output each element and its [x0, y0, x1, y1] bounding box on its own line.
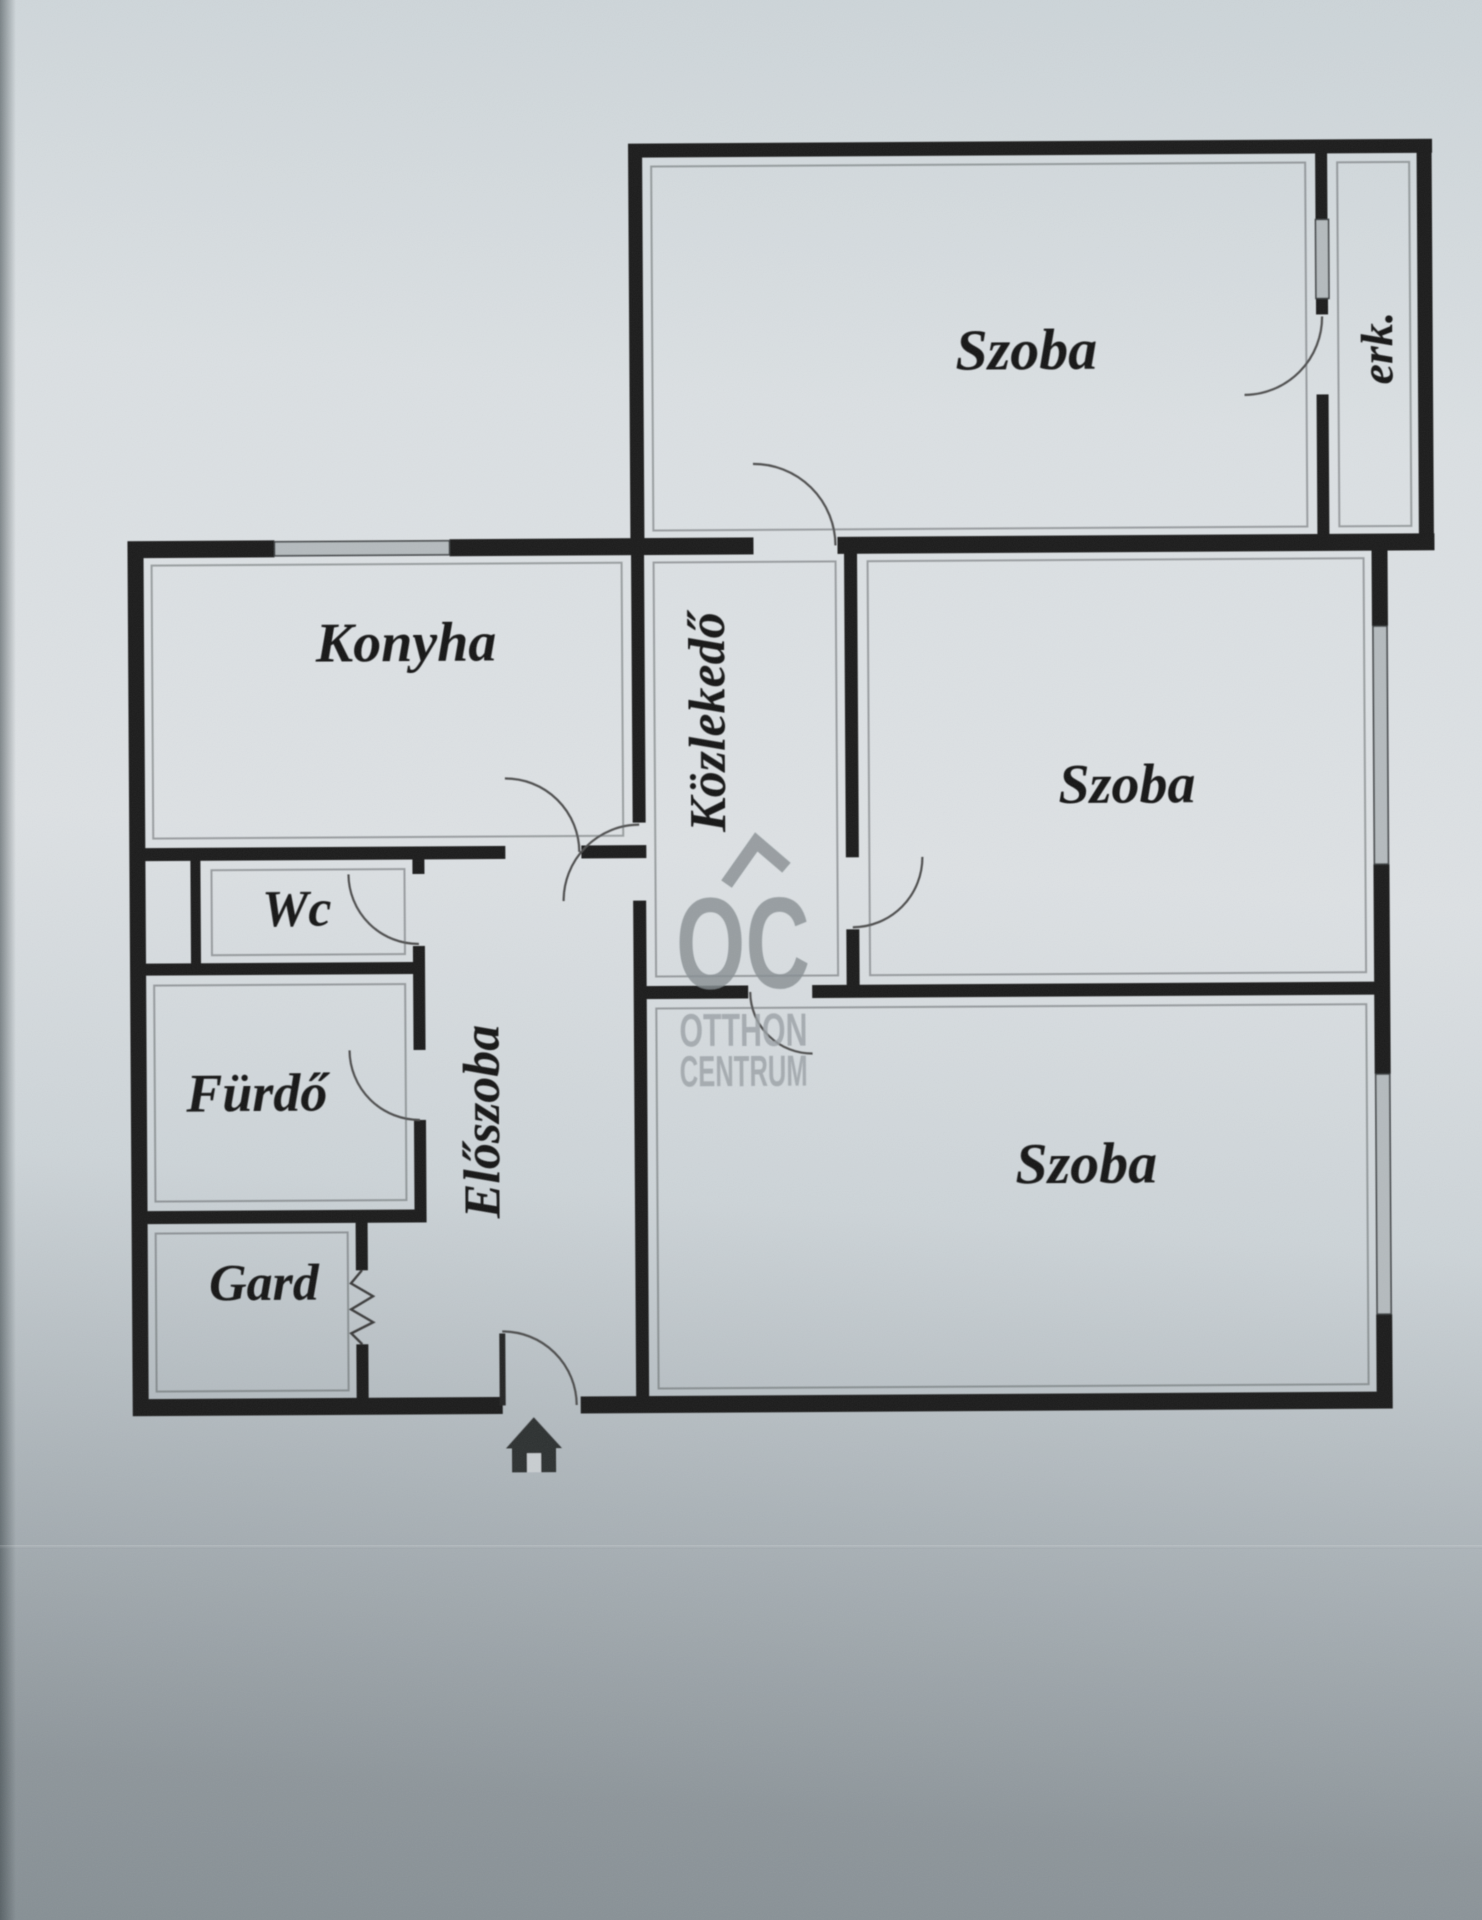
door-arc-room-top	[753, 463, 835, 545]
windows	[273, 219, 1392, 1321]
watermark-logo: OC	[675, 870, 810, 1017]
wall-segment	[850, 545, 852, 857]
wall-segment	[420, 1120, 421, 1222]
wall-segment	[134, 1216, 427, 1218]
wall-segment	[640, 901, 643, 1413]
room-label-szoba-bottom: Szoba	[1015, 1130, 1157, 1196]
entrance-icon-door	[527, 1453, 541, 1472]
wall-segment	[635, 144, 638, 555]
walls	[125, 139, 1440, 1416]
room-label-kozlekedo: Közlekedő	[679, 609, 737, 833]
wall-segment	[419, 946, 420, 1050]
folding-door-gard	[351, 1270, 373, 1344]
wall-segment	[637, 547, 639, 823]
wall-segment	[812, 988, 1388, 992]
room-label-furdo: Fürdő	[185, 1063, 330, 1124]
room-label-erkely: erk.	[1351, 312, 1402, 385]
door-arc-entrance	[502, 1331, 576, 1405]
wall-segment	[449, 546, 753, 548]
inner-face-lines	[149, 162, 1416, 1392]
wall-segment	[133, 1405, 503, 1407]
room-label-szoba-middle: Szoba	[1058, 753, 1195, 816]
wall-segment	[1384, 1314, 1385, 1408]
floor-plan-drawing: OC OTTHON CENTRUM Szoba Szoba Szoba Kony…	[0, 0, 1482, 1920]
entrance-icon	[506, 1417, 562, 1472]
wall-segment	[135, 542, 140, 1416]
wall-segment	[131, 852, 505, 854]
wall-segment	[837, 542, 1434, 546]
watermark: OC OTTHON CENTRUM	[675, 842, 811, 1097]
room-label-eloszoba: Előszoba	[453, 1025, 511, 1220]
wall-segment	[1424, 139, 1427, 550]
door-arc-wc	[348, 874, 418, 944]
door-arc-balcony	[1244, 316, 1322, 394]
window-room-bottom	[1376, 1074, 1391, 1314]
wall-segment	[581, 1400, 1393, 1405]
window-room-middle	[1373, 626, 1388, 864]
watermark-line2: CENTRUM	[680, 1047, 808, 1097]
wall-segment	[1381, 864, 1382, 1074]
wall-segment	[127, 549, 274, 550]
window-balcony	[1315, 219, 1328, 298]
floor-plan-photo: OC OTTHON CENTRUM Szoba Szoba Szoba Kony…	[0, 0, 1482, 1920]
wall-segment	[132, 968, 425, 970]
room-labels: Szoba Szoba Szoba Konyha Wc Fürdő Gard K…	[181, 312, 1409, 1313]
wall-segment	[1379, 534, 1380, 626]
room-label-szoba-top: Szoba	[955, 317, 1097, 383]
room-label-wc: Wc	[262, 881, 332, 938]
door-arc-bath	[350, 1050, 420, 1120]
room-label-gard: Gard	[209, 1255, 320, 1313]
entrance-icon-roof	[506, 1417, 562, 1448]
wall-segment	[195, 854, 196, 969]
wall-segment	[1323, 394, 1324, 550]
room-label-konyha: Konyha	[315, 611, 497, 674]
wall-segment	[628, 146, 1432, 151]
window-kitchen	[274, 541, 449, 556]
door-arc-kitchen	[505, 778, 579, 852]
door-arc-room-middle	[852, 857, 922, 927]
